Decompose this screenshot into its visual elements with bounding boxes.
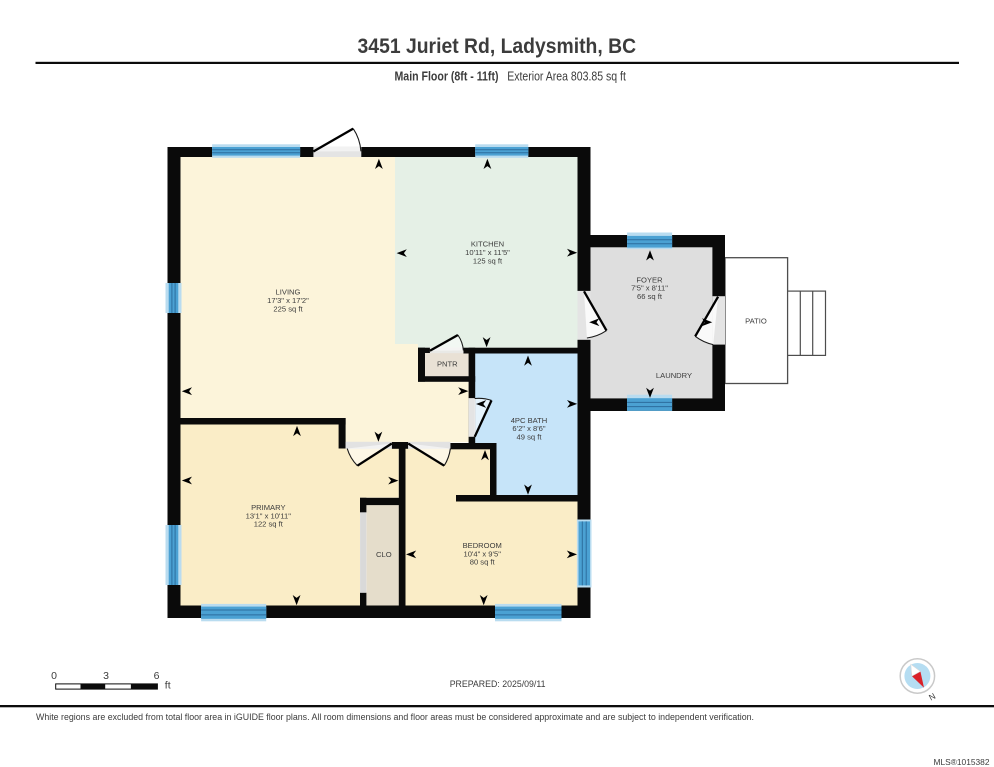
svg-text:LAUNDRY: LAUNDRY [656,371,692,380]
svg-text:3451 Juriet Rd, Ladysmith, BC: 3451 Juriet Rd, Ladysmith, BC [358,35,637,58]
svg-text:66 sq ft: 66 sq ft [637,292,663,301]
svg-text:PREPARED: 2025/09/11: PREPARED: 2025/09/11 [450,679,546,689]
svg-text:White regions are excluded fro: White regions are excluded from total fl… [36,712,754,722]
svg-text:0: 0 [51,670,57,682]
svg-text:125 sq ft: 125 sq ft [473,256,503,265]
svg-text:CLO: CLO [376,550,392,559]
svg-text:ft: ft [165,679,171,691]
svg-text:225 sq ft: 225 sq ft [273,304,303,313]
svg-text:PNTR: PNTR [437,359,458,368]
svg-text:Main Floor (8ft - 11ft): Main Floor (8ft - 11ft) [395,69,499,84]
svg-text:3: 3 [103,670,109,682]
svg-text:122 sq ft: 122 sq ft [254,520,284,529]
svg-text:MLS®1015382: MLS®1015382 [934,757,990,767]
svg-text:Exterior Area 803.85 sq ft: Exterior Area 803.85 sq ft [507,69,626,84]
svg-text:6: 6 [154,670,160,682]
svg-text:80 sq ft: 80 sq ft [470,558,496,567]
svg-text:49 sq ft: 49 sq ft [517,432,543,441]
svg-text:PATIO: PATIO [745,317,767,326]
